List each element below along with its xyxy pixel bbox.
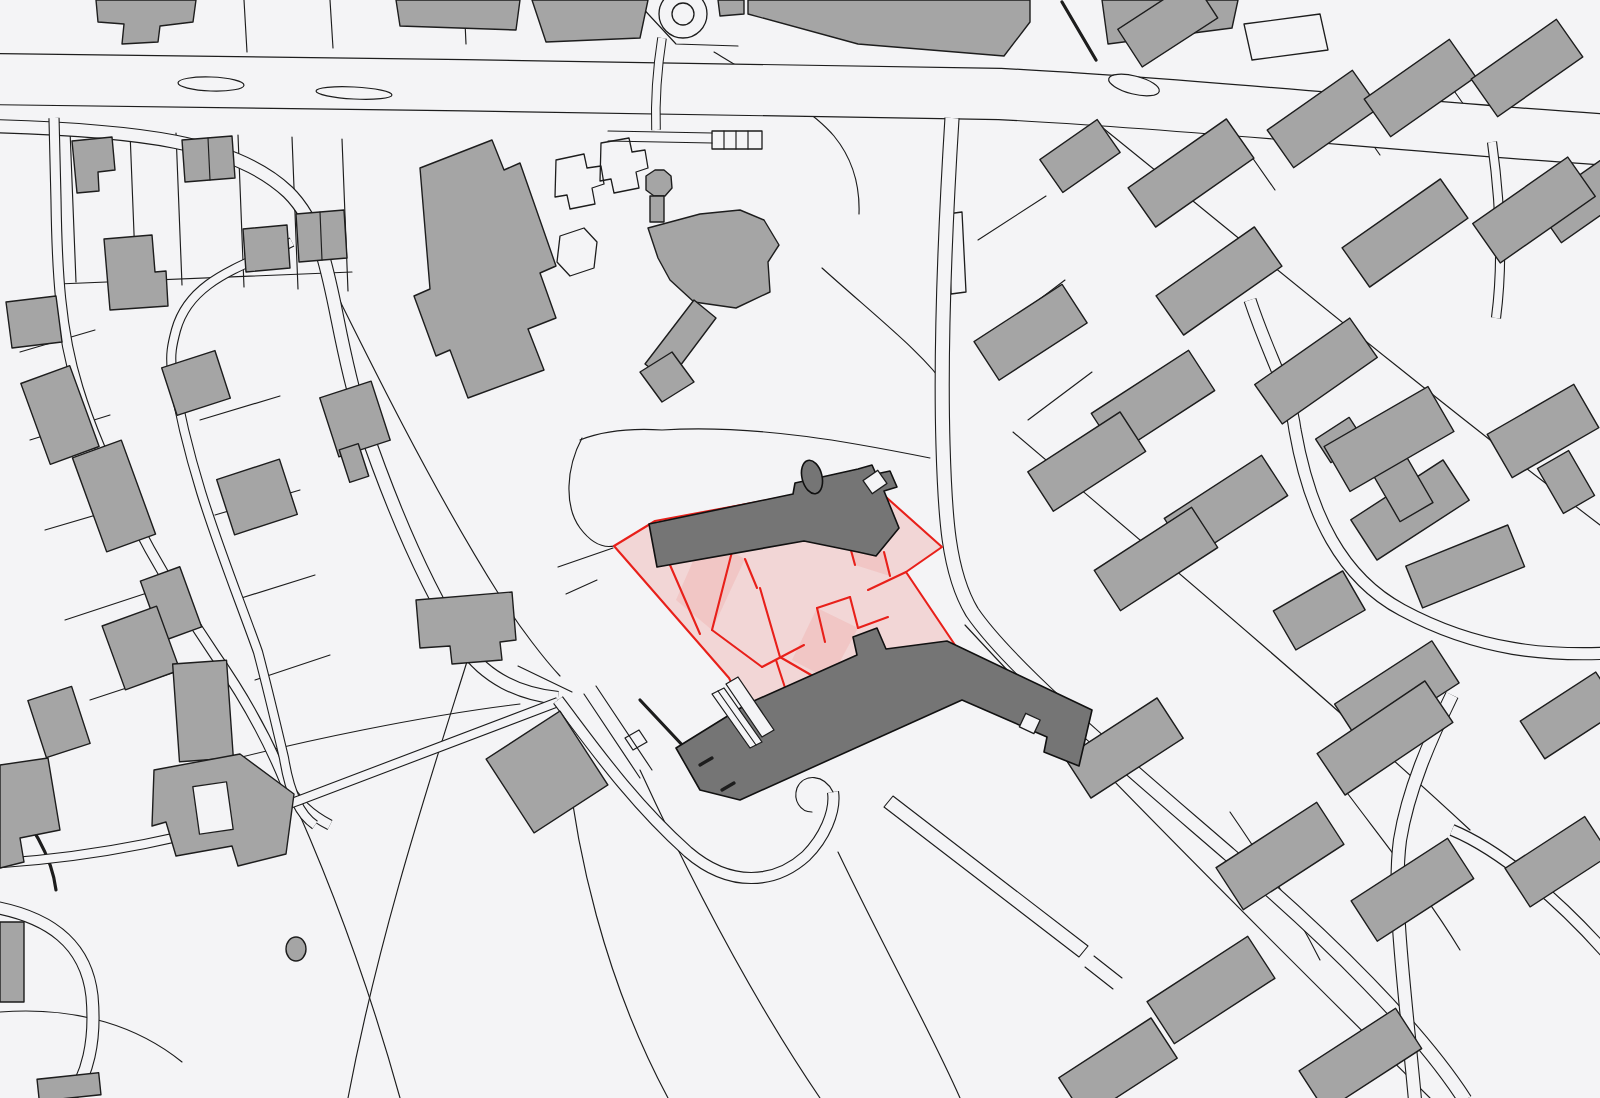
courtyard-outline: [600, 138, 648, 193]
building-footprint: [974, 284, 1087, 380]
building-footprint: [286, 937, 306, 961]
building-footprint: [1273, 571, 1365, 650]
building-footprint: [21, 366, 99, 465]
building-footprint: [532, 0, 648, 42]
building-footprint: [96, 0, 196, 44]
building-footprint: [217, 459, 298, 535]
building-footprint: [1059, 1018, 1177, 1098]
building-footprint: [1040, 120, 1120, 193]
building-footprint: [243, 225, 290, 272]
building-footprint: [37, 1073, 101, 1098]
courtyard: [193, 782, 233, 834]
building-footprint: [1267, 70, 1379, 167]
building-footprint: [396, 0, 520, 30]
building-footprint: [104, 235, 168, 310]
building-footprint: [1299, 1008, 1422, 1098]
building-footprint: [28, 686, 90, 757]
building-footprint: [0, 758, 60, 868]
courtyard-outline: [555, 154, 604, 209]
building-footprint: [416, 592, 516, 664]
building-footprint: [0, 922, 24, 1002]
building-outline: [1244, 14, 1328, 60]
building-footprint: [1342, 179, 1468, 287]
building-footprint: [1406, 525, 1525, 608]
building-footprint: [1147, 936, 1275, 1043]
campus-complex-layer: [414, 138, 779, 402]
building-footprint: [1471, 19, 1583, 116]
building-footprint: [718, 0, 744, 16]
building-footprint: [1094, 507, 1217, 610]
building-footprint: [6, 296, 62, 348]
building-footprint: [173, 660, 234, 762]
campus-hall: [648, 210, 779, 308]
campus-tower: [646, 170, 672, 196]
roundabout-outline: [659, 0, 707, 38]
roundabout-outline: [672, 3, 694, 25]
campus-tower-neck: [650, 196, 664, 222]
building-footprint: [1128, 119, 1254, 227]
courtyard-hexagon: [557, 228, 597, 276]
building-footprint: [1028, 412, 1146, 511]
building-footprint: [1520, 672, 1600, 759]
building-footprint: [72, 137, 115, 193]
t-building: [1487, 384, 1599, 513]
crosswalk: [712, 131, 762, 149]
building-footprint: [486, 711, 608, 833]
building-footprint: [72, 440, 155, 552]
building-footprint: [1351, 838, 1474, 941]
map-stage: [0, 0, 1600, 1098]
campus-main-building: [414, 140, 556, 398]
building-footprint: [339, 444, 369, 483]
site-plan-map[interactable]: [0, 0, 1600, 1098]
building-footprint: [748, 0, 1030, 56]
building-footprint: [1255, 318, 1378, 424]
